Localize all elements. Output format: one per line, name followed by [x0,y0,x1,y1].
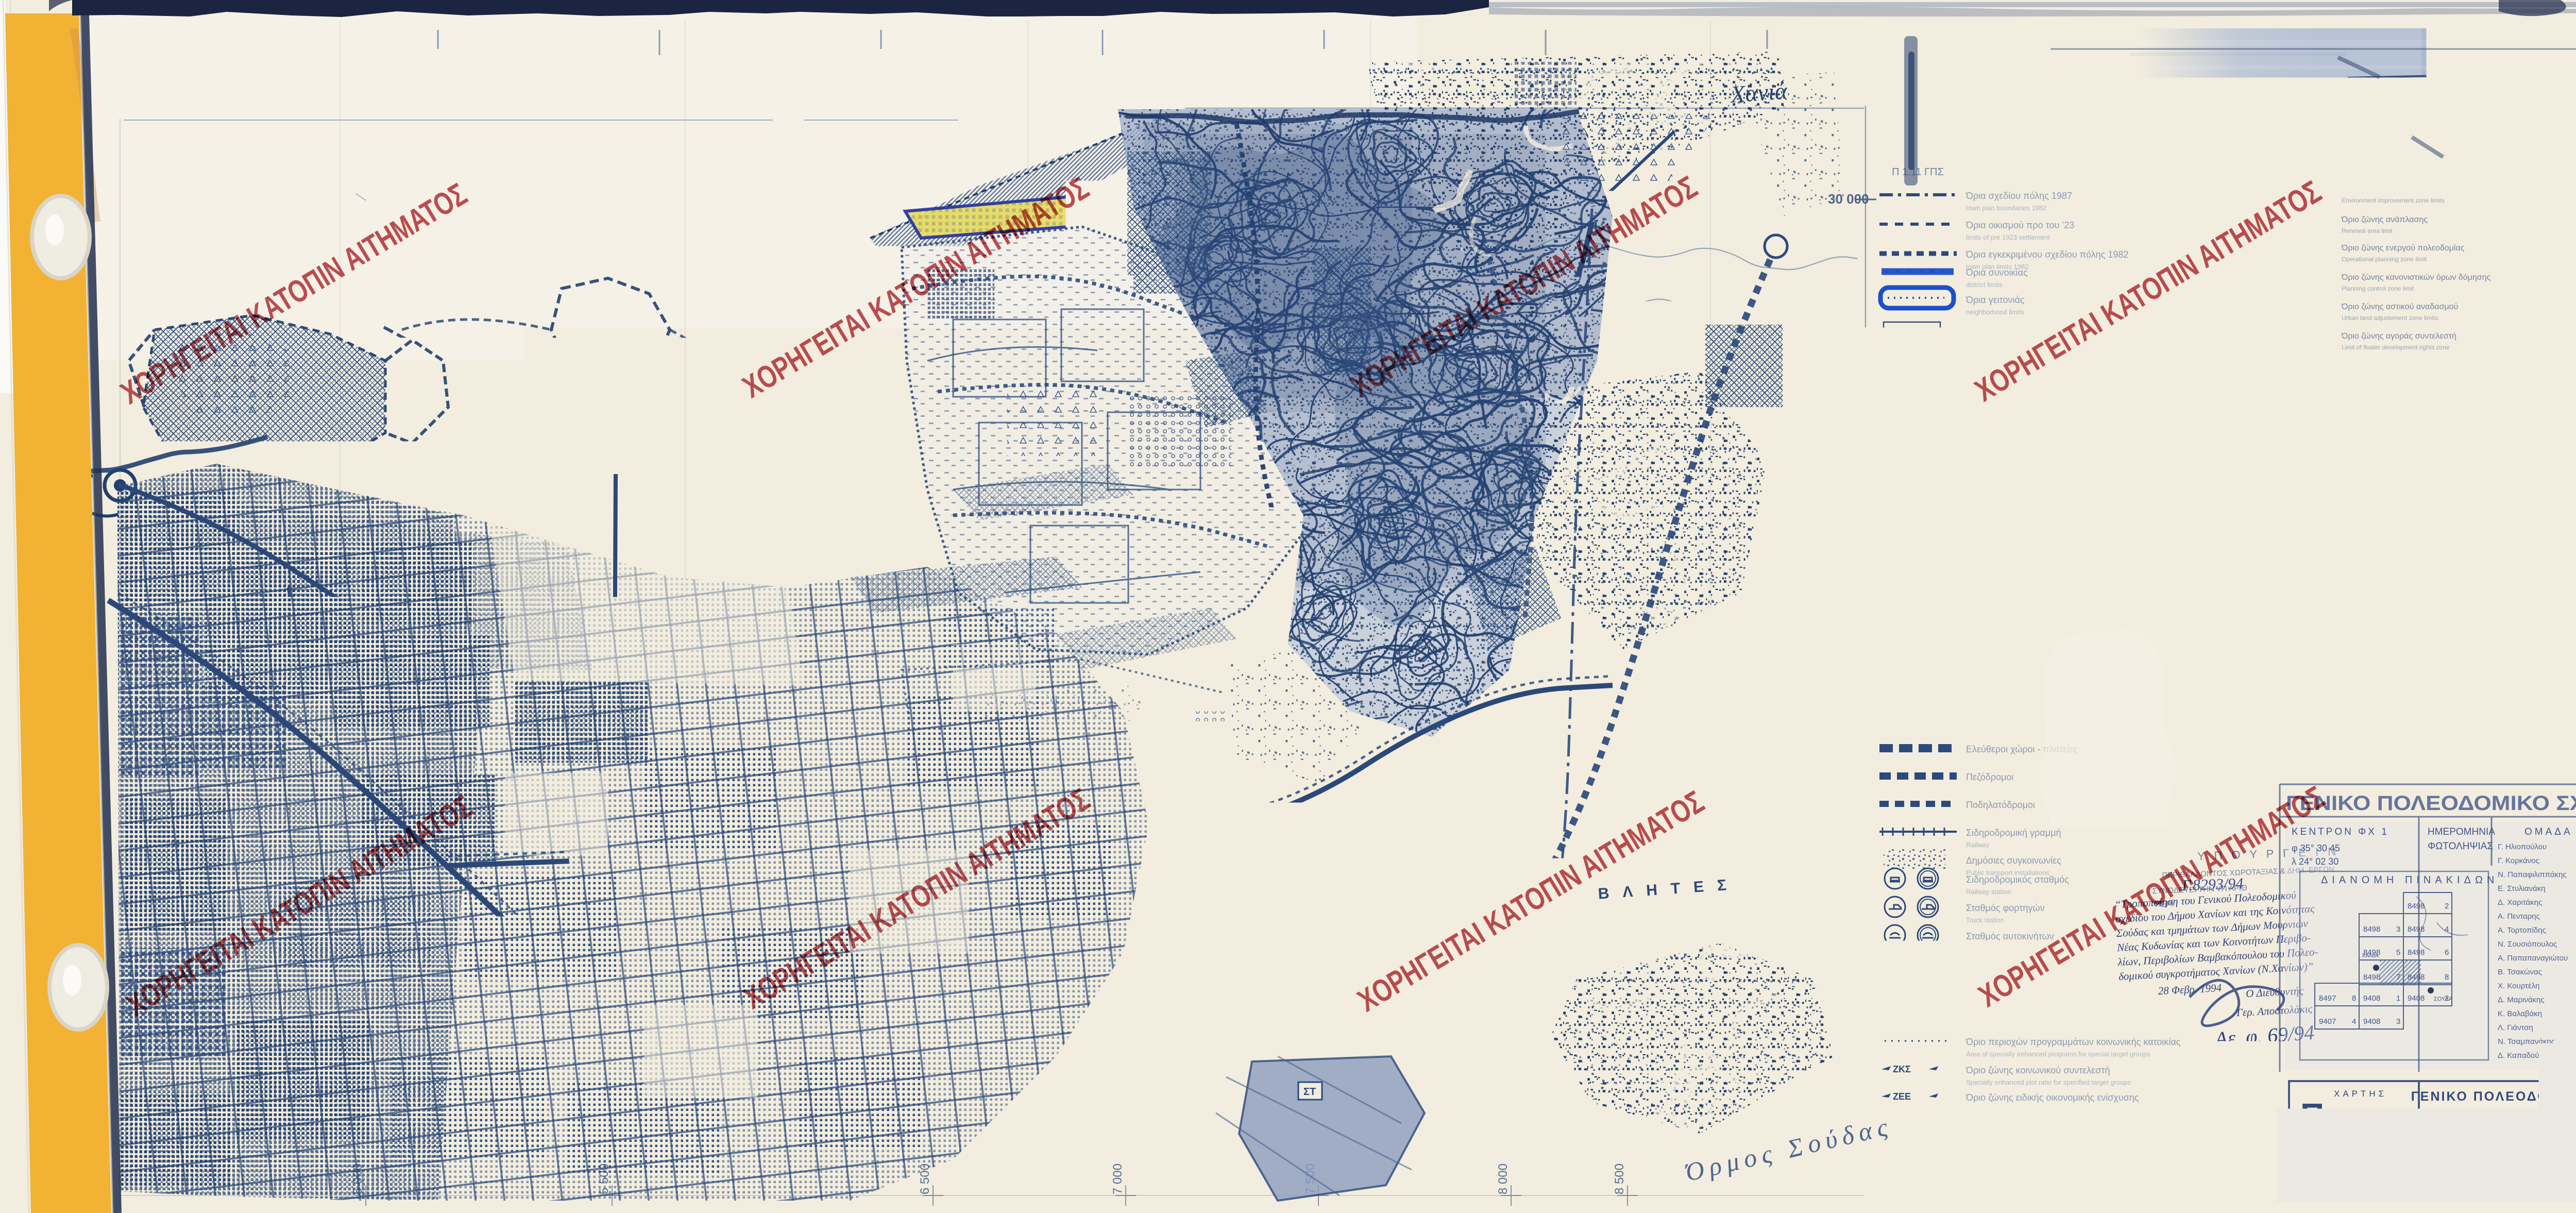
svg-text:Όριο αναδασωτέας περιοχής: Όριο αναδασωτέας περιοχής [2341,453,2447,462]
svg-text:Δ.: Δ. [2087,1173,2099,1188]
svg-text:Δασος: Δασος [1982,1157,2015,1170]
svg-text:town plan boundaries 1982: town plan boundaries 1982 [1966,204,2046,212]
svg-text:Railway: Railway [1966,841,1990,849]
svg-text:Δ. Χαριτάκης: Δ. Χαριτάκης [2498,898,2542,907]
svg-text:Όριο ζώνης κοινωνικού συντελεσ: Όριο ζώνης κοινωνικού συντελεστή [1965,1065,2110,1075]
svg-text:industrial zone: industrial zone [1966,545,2009,553]
svg-text:Θυρίς: Θυρίς [2470,713,2484,719]
svg-text:3: 3 [2396,925,2400,934]
svg-text:Other special incentive limit: Other special incentive limit [1966,1134,2048,1141]
svg-text:1:5.000: 1:5.000 [2335,1147,2371,1159]
svg-text:Π: Π [2300,1097,2324,1134]
svg-text:ΑΡΙΘ. ΣΧΕΔΙΟΥ: ΑΡΙΘ. ΣΧΕΔΙΟΥ [2416,663,2486,672]
svg-text:ΓΕΝΙΚΟ ΠΟΛΕΟΔΟΜΙΚΟ ΣΧΕΔΙΟ: ΓΕΝΙΚΟ ΠΟΛΕΟΔΟΜΙΚΟ ΣΧΕΔΙΟ [2286,792,2576,815]
svg-text:3: 3 [206,614,220,642]
svg-text:8498: 8498 [2408,948,2425,957]
svg-text:Όριο ζώνης προστασίας αρχιτεκτ: Όριο ζώνης προστασίας αρχιτεκτονικής κλη… [2341,393,2533,402]
svg-text:ΖΚΣ: ΖΚΣ [1893,1064,1911,1074]
svg-text:Όριο ζώνης ανάπλασης: Όριο ζώνης ανάπλασης [2341,215,2428,224]
svg-text:ΧΑΛΕΠΑ: ΧΑΛΕΠΑ [990,381,1056,394]
svg-text:Όριο ζώνης ενεργού πολεοδομίας: Όριο ζώνης ενεργού πολεοδομίας [2341,244,2465,252]
svg-text:ΖΕΕ: ΖΕΕ [1893,1091,1911,1102]
svg-text:Truck station: Truck station [1966,916,2004,924]
svg-text:Planning control zone limit: Planning control zone limit [2342,285,2414,292]
svg-text:Ν. Σουσιόπουλος: Ν. Σουσιόπουλος [2498,940,2557,949]
svg-text:Όριο ζώνης περιβαλλοντικής εξυ: Όριο ζώνης περιβαλλοντικής εξυγίανσης αν… [2341,185,2539,194]
svg-text:ΖΑΑ: ΖΑΑ [2291,301,2309,311]
svg-text:2: 2 [2445,902,2449,911]
svg-text:Γ. Κορκάνος: Γ. Κορκάνος [2498,856,2539,865]
svg-text:Α. Τορτοπίδης: Α. Τορτοπίδης [2498,926,2546,935]
svg-text:ΚΛΙΜΑΚΑ: ΚΛΙΜΑΚΑ [2327,1137,2380,1147]
svg-text:Π 1.11 ΓΠΣ: Π 1.11 ΓΠΣ [1892,166,1944,178]
svg-text:ΓΕΝΙΚΟ ΠΟΛΕΟΔΟΜΙΚΟ ΣΧΕΔΙΟ: ΓΕΝΙΚΟ ΠΟΛΕΟΔΟΜΙΚΟ ΣΧΕΔΙΟ [2411,1089,2576,1104]
svg-text:ΕΓΓΡ. ΦΩΝ: ΕΓΓΡ. ΦΩΝ [2416,703,2458,712]
svg-text:1.11: 1.11 [2334,1103,2383,1132]
svg-text:18: 18 [979,679,1007,706]
svg-text:ΔΙΑΝΟΜΗ ΠΙΝΑΚΙΔΩΝ: ΔΙΑΝΟΜΗ ΠΙΝΑΚΙΔΩΝ [2321,874,2498,886]
svg-text:Ελεύθεροι χώροι: Ελεύθεροι χώροι [1966,646,2035,656]
svg-text:Limit of floater development r: Limit of floater development rights zone [2342,344,2450,351]
svg-text:8497: 8497 [2319,994,2336,1003]
svg-text:Φακ.: Φακ. [2508,713,2519,719]
svg-text:Area of specially enhanced pro: Area of specially enhanced programs for … [1966,1050,2150,1058]
svg-text:district limits: district limits [1966,281,2003,289]
svg-text:Λ. Γιάντση: Λ. Γιάντση [2498,1023,2533,1032]
svg-text:7804: 7804 [2566,1194,2576,1202]
svg-text:Όριο ζώνης ειδικής οικονομικής: Όριο ζώνης ειδικής οικονομικής ενίσχυσης [1965,1092,2139,1103]
svg-text:Όρια εγκεκριμένου σχεδίου πόλη: Όρια εγκεκριμένου σχεδίου πόλης 1982 [1965,249,2128,260]
svg-text:ΦΩΤΟΛΗΨΙΑΣ: ΦΩΤΟΛΗΨΙΑΣ [2428,841,2493,852]
svg-text:Ζώνη ελεγχόμενης ανάπτυξης: Ζώνη ελεγχόμενης ανάπτυξης [1966,502,2089,512]
svg-text:24 Μαρτία: 24 Μαρτία [2188,734,2246,751]
svg-text:408: 408 [2177,1147,2200,1164]
svg-text:Ν. Τσαμπανάκης: Ν. Τσαμπανάκης [2498,1037,2555,1046]
svg-text:Όρια γειτονιάς: Όρια γειτονιάς [1965,295,2025,305]
svg-text:Specially financial incentive: Specially financial incentive limit [1966,1106,2061,1114]
svg-text:Χώροι πρασίνου: Χώροι πρασίνου [1966,705,2034,715]
svg-text:Σταθμός αυτοκινήτων: Σταθμός αυτοκινήτων [1966,931,2054,941]
svg-text:Η ΕΝ ΤΩ ΥΠ: Η ΕΝ ΤΩ ΥΠ [2191,716,2234,726]
svg-text:9: 9 [708,735,722,763]
svg-text:Χ. Κουρτέλη: Χ. Κουρτέλη [2498,982,2539,990]
svg-text:ΣΟΥΔΑ: ΣΟΥΔΑ [2434,996,2453,1002]
svg-text:Πεζόδρομοι: Πεζόδρομοι [1966,772,2013,782]
svg-text:Α. Πενταρης: Α. Πενταρης [2498,912,2540,921]
svg-text:Reforestation zone limit: Reforestation zone limit [2342,465,2406,472]
svg-text:Urban land adjustement zone li: Urban land adjustement zone limits [2342,314,2438,322]
svg-text:7 000: 7 000 [1111,1164,1125,1194]
svg-text:Environment improvement zone l: Environment improvement zone limits [2342,197,2445,204]
svg-text:8498: 8498 [2363,925,2380,934]
svg-text:ΕΡΜΑΡΙΟΝ: ΕΡΜΑΡΙΟΝ [2416,684,2463,692]
svg-text:Ειδικός: Ειδικός [2476,669,2494,676]
svg-text:Όρια συνοικίας: Όρια συνοικίας [1965,267,2028,278]
svg-text:ΑΠΟΡΡ: ΑΠΟΡΡ [941,384,975,393]
svg-text:Β. Τσακώνας: Β. Τσακώνας [2498,968,2542,976]
svg-text:general residential area: general residential area [1966,486,2037,494]
svg-text:Όρια οικισμού προ του ’23: Όρια οικισμού προ του ’23 [1965,220,2074,230]
svg-text:10: 10 [290,843,317,870]
svg-text:Κ. Βαλαβάκη: Κ. Βαλαβάκη [2498,1009,2542,1018]
svg-text:Όριο ζώνης αγοράς συντελεστή: Όριο ζώνης αγοράς συντελεστή [2341,332,2456,341]
svg-text:φ 35° 30 45: φ 35° 30 45 [2292,843,2340,853]
svg-text:Specially enhanced plot ratio: Specially enhanced plot ratio for specif… [1966,1079,2131,1086]
svg-text:ΣΤ: ΣΤ [1303,1086,1316,1098]
svg-text:Φακ.: Φακ. [2502,686,2514,692]
svg-text:λ 24° 02 30: λ 24° 02 30 [2292,856,2338,867]
svg-text:Σιδηροδρομική γραμμή: Σιδηροδρομική γραμμή [1966,828,2061,838]
svg-text:Ε. Στυλιανάκη: Ε. Στυλιανάκη [2498,884,2546,893]
svg-text:Χονδρεμπόριο: Χονδρεμπόριο [1966,562,2026,572]
svg-text:ΕΡΓΑΤ.ΚΑΤΟΙΚΙΕΣ: ΕΡΓΑΤ.ΚΑΤΟΙΚΙΕΣ [771,807,925,823]
svg-text:1: 1 [2396,994,2400,1003]
svg-text:Δημόσιες συγκοινωνίες: Δημόσιες συγκοινωνίες [1966,855,2061,866]
svg-text:Operational planning zone limi: Operational planning zone limit [2342,256,2427,263]
svg-text:ΖΕΚ: ΖΕΚ [450,900,467,909]
svg-text:limits of pre 1923 settlement: limits of pre 1923 settlement [1966,233,2050,241]
svg-text:Zone limit of architectural he: Zone limit of architectural heritage [2342,405,2435,412]
svg-text:9407: 9407 [2319,1017,2336,1026]
svg-text:ΤΑ ΠΙΣΤΟΠΟΙΗΤΙΚΑ ΤΩΝ ΣΧΕΔΙΩΝ: ΤΑ ΠΙΣΤΟΠΟΙΗΤΙΚΑ ΤΩΝ ΣΧΕΔΙΩΝ [2128,1163,2244,1171]
svg-text:19: 19 [1115,752,1149,786]
svg-text:69: 69 [2517,678,2529,691]
svg-text:Γενική κατοικία: Γενική κατοικία [1966,473,2027,483]
svg-text:ΖΚΟ: ΖΚΟ [2291,272,2309,282]
svg-text:Όριο ζώνης οικιστικού ελέγχου: Όριο ζώνης οικιστικού ελέγχου [2341,483,2452,492]
svg-text:14: 14 [2291,732,2305,747]
svg-text:ΜΑΙΟΣ 1984: ΜΑΙΟΣ 1984 [2317,1166,2389,1177]
svg-text:Όριο ζώνης κανονιστικών όρων δ: Όριο ζώνης κανονιστικών όρων δόμησης [2341,273,2491,282]
svg-text:14: 14 [459,1038,486,1065]
svg-text:9408: 9408 [2363,994,2380,1003]
svg-text:ΖΕΚ: ΖΕΚ [761,1026,779,1035]
svg-text:ΚΑΛΙΚΑ: ΚΑΛΙΚΑ [529,971,597,987]
svg-text:Renewal area limit: Renewal area limit [2342,227,2393,234]
svg-text:ΚΟΥΜΠΕΣ: ΚΟΥΜΠΕΣ [380,1014,460,1030]
svg-text:8: 8 [2352,994,2356,1003]
svg-text:Zone limit of protected sites: Zone limit of protected sites of histori… [2342,375,2468,382]
svg-text:ΟΜΑΔΑ: ΟΜΑΔΑ [2524,827,2573,837]
svg-text:Όριο ζώνης αστικού αναδασμού: Όριο ζώνης αστικού αναδασμού [2341,302,2458,311]
svg-text:Αθλητισμός: Αθλητισμός [1966,617,2013,628]
svg-text:1: 1 [212,386,226,414]
svg-text:Θυρίς: Θυρίς [2463,686,2478,692]
svg-text:GENERAL URBAN PLAN: GENERAL URBAN PLAN [2438,1110,2576,1124]
svg-text:1: 1 [1906,325,1912,338]
svg-text:Αρχαιολογικοί χώροι: Αρχαιολογικοί χώροι [1966,675,2049,685]
svg-text:Γενικός: Γενικός [2476,659,2495,665]
svg-text:Parking: Parking [1966,945,1989,952]
svg-text:Όρια σχεδίου πόλης 1987: Όρια σχεδίου πόλης 1987 [1965,191,2072,201]
svg-text:Χανιά: Χανιά [1728,77,1788,108]
svg-text:6: 6 [2445,948,2449,957]
svg-text:ΑΓ.ΛΟΥΚΑΣ: ΑΓ.ΛΟΥΚΑΣ [255,823,348,839]
svg-text:Τουρισμός - αναψυχή: Τουρισμός - αναψυχή [1966,589,2054,600]
svg-text:Δ. Μαρινάκης: Δ. Μαρινάκης [2498,996,2545,1004]
svg-text:Όριο ζώνης άλλων ειδικών κινήτ: Όριο ζώνης άλλων ειδικών κινήτρων [1965,1120,2114,1131]
svg-text:Βιομηχανική - βιοτεχνική ζώνη: Βιομηχανική - βιοτεχνική ζώνη [1966,532,2089,542]
svg-text:Σταθμός φορτηγών: Σταθμός φορτηγών [1966,903,2044,913]
svg-text:Ελικοδρόμιο: Ελικοδρόμιο [1966,1016,2016,1026]
svg-text:ΔΙΚΑΣΤΗΡΙΑ: ΔΙΚΑΣΤΗΡΙΑ [608,712,722,729]
svg-text:Protection natural environment: Protection natural environmental limit [2342,435,2444,442]
svg-text:ΖΕΚ: ΖΕΚ [1893,1119,1911,1130]
svg-text:Planning development area limi: Planning development area limits [2342,495,2433,502]
svg-text:controlled development zone: controlled development zone [1966,515,2052,523]
svg-text:ΦΥΛΛΟΝ: ΦΥΛΛΟΝ [2303,713,2335,722]
svg-text:areas to be expanded: areas to be expanded [1966,429,2031,436]
svg-text:Heliport: Heliport [1966,1030,1989,1037]
svg-text:Ν. Παπαφιλιππάκης: Ν. Παπαφιλιππάκης [2498,870,2567,879]
svg-text:ΑΗ - ΓΙΑΝΝΗΣ: ΑΗ - ΓΙΑΝΝΗΣ [582,821,710,838]
svg-text:7: 7 [561,1002,575,1029]
svg-text:6: 6 [970,348,984,375]
svg-text:ΖΕΠ: ΖΕΠ [2291,243,2308,252]
svg-text:19: 19 [1243,860,1268,885]
svg-text:ΖΑΣ: ΖΑΣ [2291,331,2308,341]
svg-text:ΧΑΡΤΗΣ: ΧΑΡΤΗΣ [2334,1089,2387,1099]
svg-text:pure residential area: pure residential area [1966,457,2027,464]
svg-text:280: 280 [2260,710,2279,723]
svg-text:Railway station: Railway station [1966,888,2011,896]
svg-text:8498: 8498 [2363,973,2380,982]
svg-text:8498: 8498 [2408,925,2425,934]
svg-text:ΝΟΜΟΣ ΧΑΝΙΩΝ - CANEA: ΝΟΜΟΣ ΧΑΝΙΩΝ - CANEA [2443,1166,2576,1177]
svg-text:neighborhood limits: neighborhood limits [1966,308,2024,316]
svg-text:8 000: 8 000 [1496,1164,1510,1194]
svg-text:ΧΑΝΙΑ: ΧΑΝΙΑ [2362,953,2379,959]
svg-text:ΠΑΛΗΑ ΠΟΛΗ: ΠΑΛΗΑ ΠΟΛΗ [201,435,325,452]
svg-text:ΑΜΠΕΡΙΑ: ΑΜΠΕΡΙΑ [675,545,756,561]
svg-text:21: 21 [1087,946,1109,967]
svg-text:8: 8 [708,840,722,867]
svg-text:ΜΟΝΤΕΒΑΡΔΙΑ: ΜΟΝΤΕΒΑΡΔΙΑ [1190,917,1304,931]
svg-text:ΧΑΝΙΑ CANEA: ΧΑΝΙΑ CANEA [2475,1140,2576,1153]
svg-text:Όριο ζώνης προστασίας φυσικού: Όριο ζώνης προστασίας φυσικού περιβάλλον… [2341,423,2518,432]
svg-text:ΚΟΥΜ - ΚΑΠΗ: ΚΟΥΜ - ΚΑΠΗ [550,517,676,534]
svg-text:62228//328: 62228//328 [2474,700,2523,713]
svg-text:5: 5 [773,553,787,580]
svg-text:ΚΕΝΤΡΟ: ΚΕΝΤΡΟ [160,769,211,781]
svg-text:Επέκταση σχεδίου πόλης: Επέκταση σχεδίου πόλης [1966,415,2070,426]
svg-text:9408: 9408 [2363,1017,2380,1026]
svg-text:ΚΕΝΤΡΟΝ ΦΧ 1: ΚΕΝΤΡΟΝ ΦΧ 1 [2292,827,2389,837]
svg-text:Αμιγής κατοικία: Αμιγής κατοικία [1966,443,2029,453]
svg-text:8: 8 [2445,973,2449,982]
svg-text:5: 5 [2396,948,2400,957]
svg-text:ΗΜΕΡΟΜΗΝΙΑ: ΗΜΕΡΟΜΗΝΙΑ [2428,827,2495,837]
svg-text:3: 3 [2396,1017,2400,1026]
svg-text:4: 4 [714,487,728,515]
svg-text:Δ. Καπαδούκακη: Δ. Καπαδούκακη [2498,1051,2555,1060]
svg-text:9408: 9408 [2408,994,2425,1003]
svg-text:Forest: Forest [1982,1173,2007,1183]
svg-text:Γ. Ηλιοπούλου: Γ. Ηλιοπούλου [2498,843,2547,851]
svg-text:Ποδηλατόδρομοι: Ποδηλατόδρομοι [1966,800,2035,810]
svg-text:4: 4 [2352,1017,2356,1026]
svg-text:Α. Παπαπαναγιώτου: Α. Παπαπαναγιώτου [2498,954,2568,963]
svg-text:Όριο ζώνης προστασίας χώρων ισ: Όριο ζώνης προστασίας χώρων ιστορικού εν… [2341,363,2550,372]
